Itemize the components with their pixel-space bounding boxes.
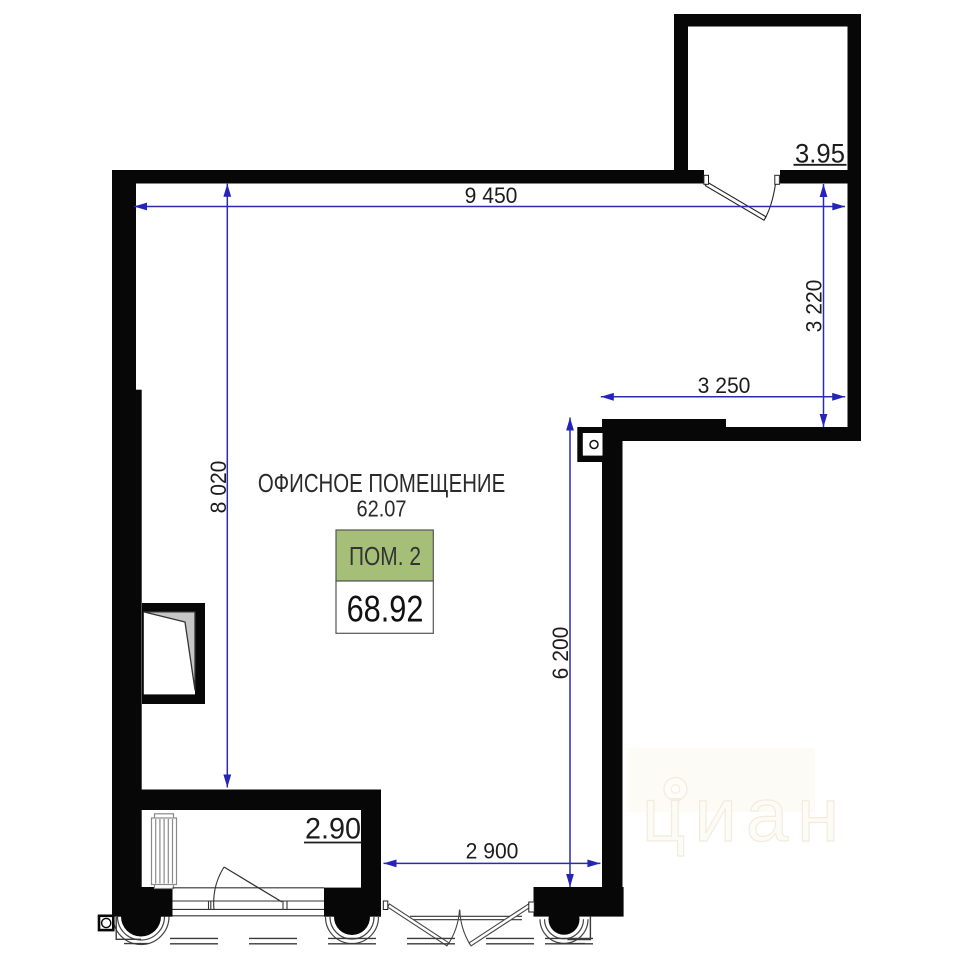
svg-text:3 220: 3 220 xyxy=(801,280,827,333)
svg-text:2.90: 2.90 xyxy=(305,812,361,846)
svg-text:ОФИСНОЕ ПОМЕЩЕНИЕ: ОФИСНОЕ ПОМЕЩЕНИЕ xyxy=(258,469,505,498)
svg-text:68.92: 68.92 xyxy=(347,589,424,630)
svg-text:ПОМ. 2: ПОМ. 2 xyxy=(349,542,421,570)
svg-text:62.07: 62.07 xyxy=(356,495,406,522)
svg-text:8 020: 8 020 xyxy=(206,461,232,514)
svg-text:2 900: 2 900 xyxy=(466,838,519,864)
svg-text:циан: циан xyxy=(642,773,848,858)
svg-text:6 200: 6 200 xyxy=(548,627,574,680)
svg-text:9 450: 9 450 xyxy=(465,183,518,209)
svg-text:3.95: 3.95 xyxy=(795,138,845,169)
svg-text:3 250: 3 250 xyxy=(698,373,751,399)
